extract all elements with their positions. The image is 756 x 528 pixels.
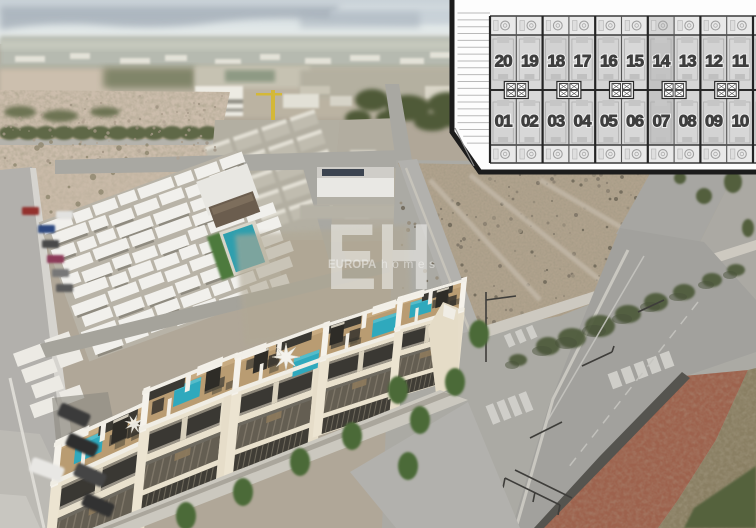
svg-text:07: 07 (652, 112, 669, 131)
svg-text:homes: homes (381, 257, 440, 271)
svg-text:16: 16 (600, 52, 617, 71)
svg-text:EUROPA: EUROPA (328, 259, 376, 271)
svg-text:09: 09 (705, 112, 722, 131)
svg-text:18: 18 (547, 52, 564, 71)
svg-text:12: 12 (705, 52, 722, 71)
svg-text:05: 05 (600, 112, 617, 131)
svg-text:01: 01 (495, 112, 512, 131)
svg-text:13: 13 (679, 52, 696, 71)
svg-text:20: 20 (495, 52, 512, 71)
svg-text:06: 06 (626, 112, 643, 131)
svg-text:10: 10 (731, 112, 748, 131)
svg-text:03: 03 (547, 112, 564, 131)
svg-text:19: 19 (521, 52, 538, 71)
svg-text:04: 04 (574, 112, 592, 131)
svg-text:15: 15 (626, 52, 643, 71)
svg-text:17: 17 (574, 52, 591, 71)
svg-text:08: 08 (679, 112, 696, 131)
svg-text:14: 14 (652, 52, 670, 71)
svg-text:02: 02 (521, 112, 538, 131)
svg-text:11: 11 (732, 52, 749, 71)
